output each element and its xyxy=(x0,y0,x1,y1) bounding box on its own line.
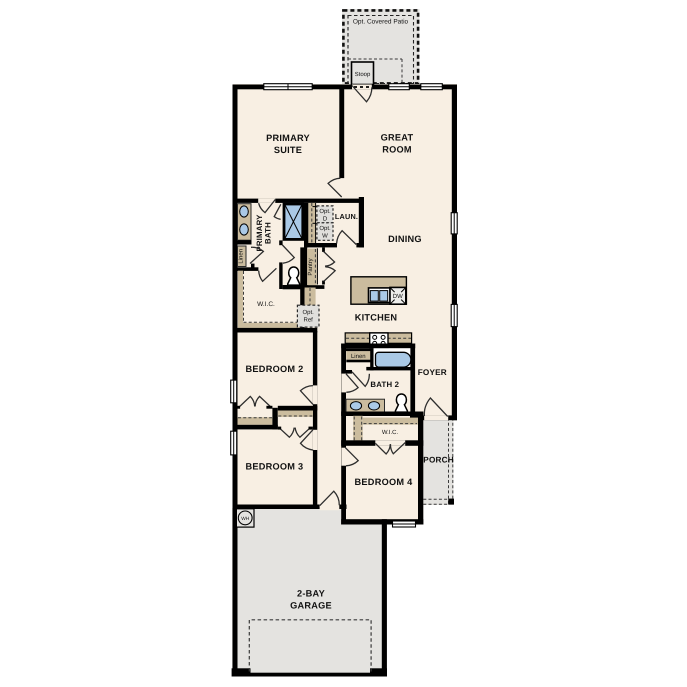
svg-text:GREAT: GREAT xyxy=(381,133,414,143)
svg-text:W.I.C.: W.I.C. xyxy=(257,301,275,308)
svg-text:KITCHEN: KITCHEN xyxy=(355,313,398,323)
svg-text:BATH 2: BATH 2 xyxy=(370,380,399,389)
svg-text:PORCH: PORCH xyxy=(423,456,454,465)
svg-text:BEDROOM 2: BEDROOM 2 xyxy=(246,364,304,374)
svg-text:W.I.C.: W.I.C. xyxy=(382,429,399,436)
svg-text:D: D xyxy=(323,215,328,222)
svg-text:WH: WH xyxy=(241,516,250,522)
svg-text:DW: DW xyxy=(393,293,403,300)
svg-text:Opt.: Opt. xyxy=(319,225,331,232)
svg-text:Linen: Linen xyxy=(351,353,366,360)
svg-text:Pantry: Pantry xyxy=(307,258,314,275)
svg-text:BATH: BATH xyxy=(264,222,273,244)
svg-text:BEDROOM 4: BEDROOM 4 xyxy=(355,477,414,487)
svg-text:DINING: DINING xyxy=(388,234,422,244)
svg-text:PRIMARY: PRIMARY xyxy=(266,133,310,143)
svg-text:BEDROOM 3: BEDROOM 3 xyxy=(245,462,303,472)
svg-text:Opt.: Opt. xyxy=(319,208,331,215)
svg-text:SUITE: SUITE xyxy=(274,145,302,155)
svg-text:Stoop: Stoop xyxy=(355,71,371,78)
svg-text:FOYER: FOYER xyxy=(418,368,447,377)
svg-text:PRIMARY: PRIMARY xyxy=(255,214,264,252)
svg-text:GARAGE: GARAGE xyxy=(290,601,332,611)
svg-text:Ref: Ref xyxy=(304,317,314,324)
svg-text:LAUN.: LAUN. xyxy=(335,212,358,221)
svg-text:W: W xyxy=(322,232,328,239)
svg-text:Opt.: Opt. xyxy=(303,309,315,316)
svg-text:Linen: Linen xyxy=(237,249,244,264)
svg-text:2-BAY: 2-BAY xyxy=(297,589,325,599)
svg-text:Opt. Covered Patio: Opt. Covered Patio xyxy=(353,19,409,26)
svg-text:ROOM: ROOM xyxy=(382,144,412,154)
